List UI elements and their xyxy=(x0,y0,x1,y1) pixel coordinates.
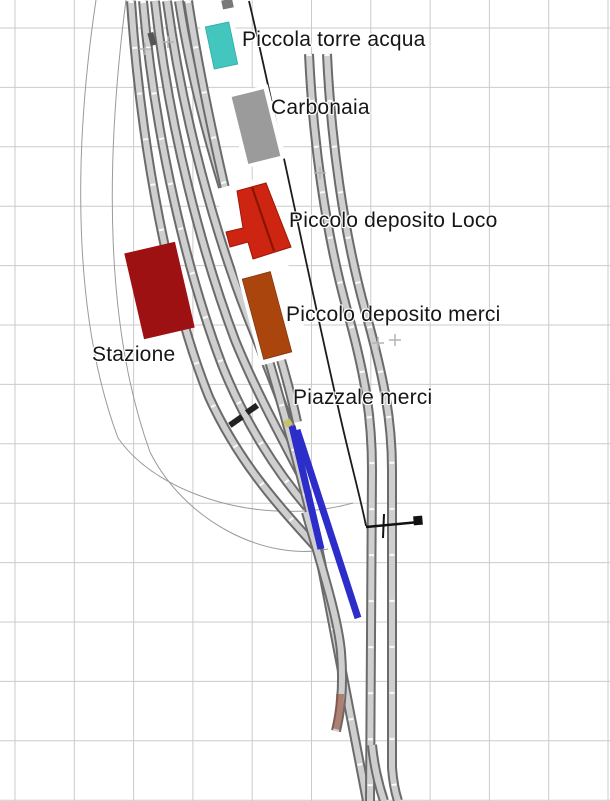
section-marker-square xyxy=(413,516,423,526)
section-marker-tick xyxy=(383,514,384,538)
label-deposito-merci[interactable]: Piccolo deposito merci xyxy=(286,304,501,326)
top-edge-block xyxy=(221,0,234,10)
label-piazzale-merci[interactable]: Piazzale merci xyxy=(293,387,432,409)
label-deposito-loco[interactable]: Piccolo deposito Loco xyxy=(289,210,498,232)
stub-wear-tint xyxy=(336,694,340,729)
center-marker-5 xyxy=(389,334,401,346)
label-carbonaia[interactable]: Carbonaia xyxy=(271,97,370,119)
label-torre-acqua[interactable]: Piccola torre acqua xyxy=(242,29,426,51)
trackplan-page: Piccola torre acqua Carbonaia Piccolo de… xyxy=(0,0,610,801)
label-stazione[interactable]: Stazione xyxy=(92,344,175,366)
buffer-stop-1 xyxy=(228,414,244,428)
